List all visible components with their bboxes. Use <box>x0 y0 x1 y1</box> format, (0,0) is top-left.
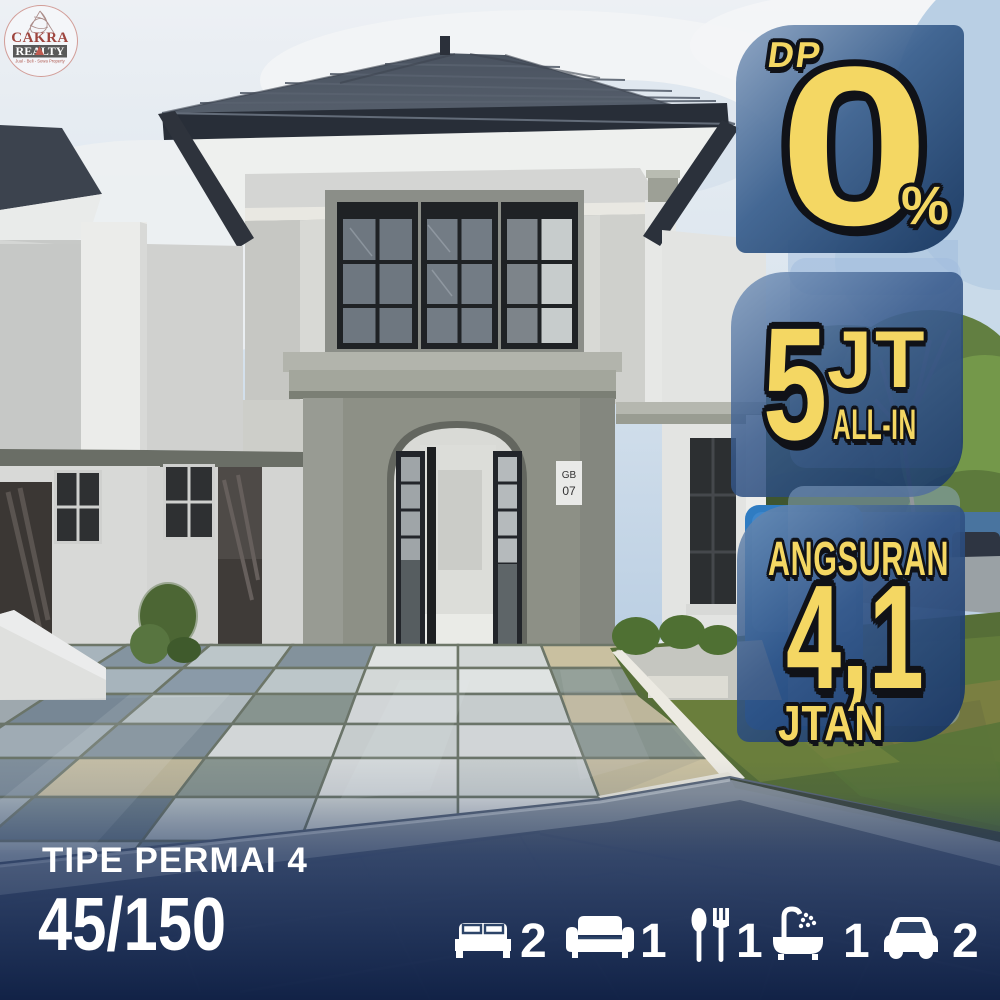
svg-text:1: 1 <box>843 915 870 967</box>
svg-text:07: 07 <box>562 484 576 498</box>
svg-text:GB: GB <box>562 470 577 481</box>
svg-text:Jual - Beli - Sewa Property: Jual - Beli - Sewa Property <box>15 59 65 64</box>
svg-text:1: 1 <box>640 915 667 967</box>
svg-text:1: 1 <box>736 915 763 967</box>
svg-text:2: 2 <box>952 915 979 967</box>
svg-text:2: 2 <box>520 915 547 967</box>
